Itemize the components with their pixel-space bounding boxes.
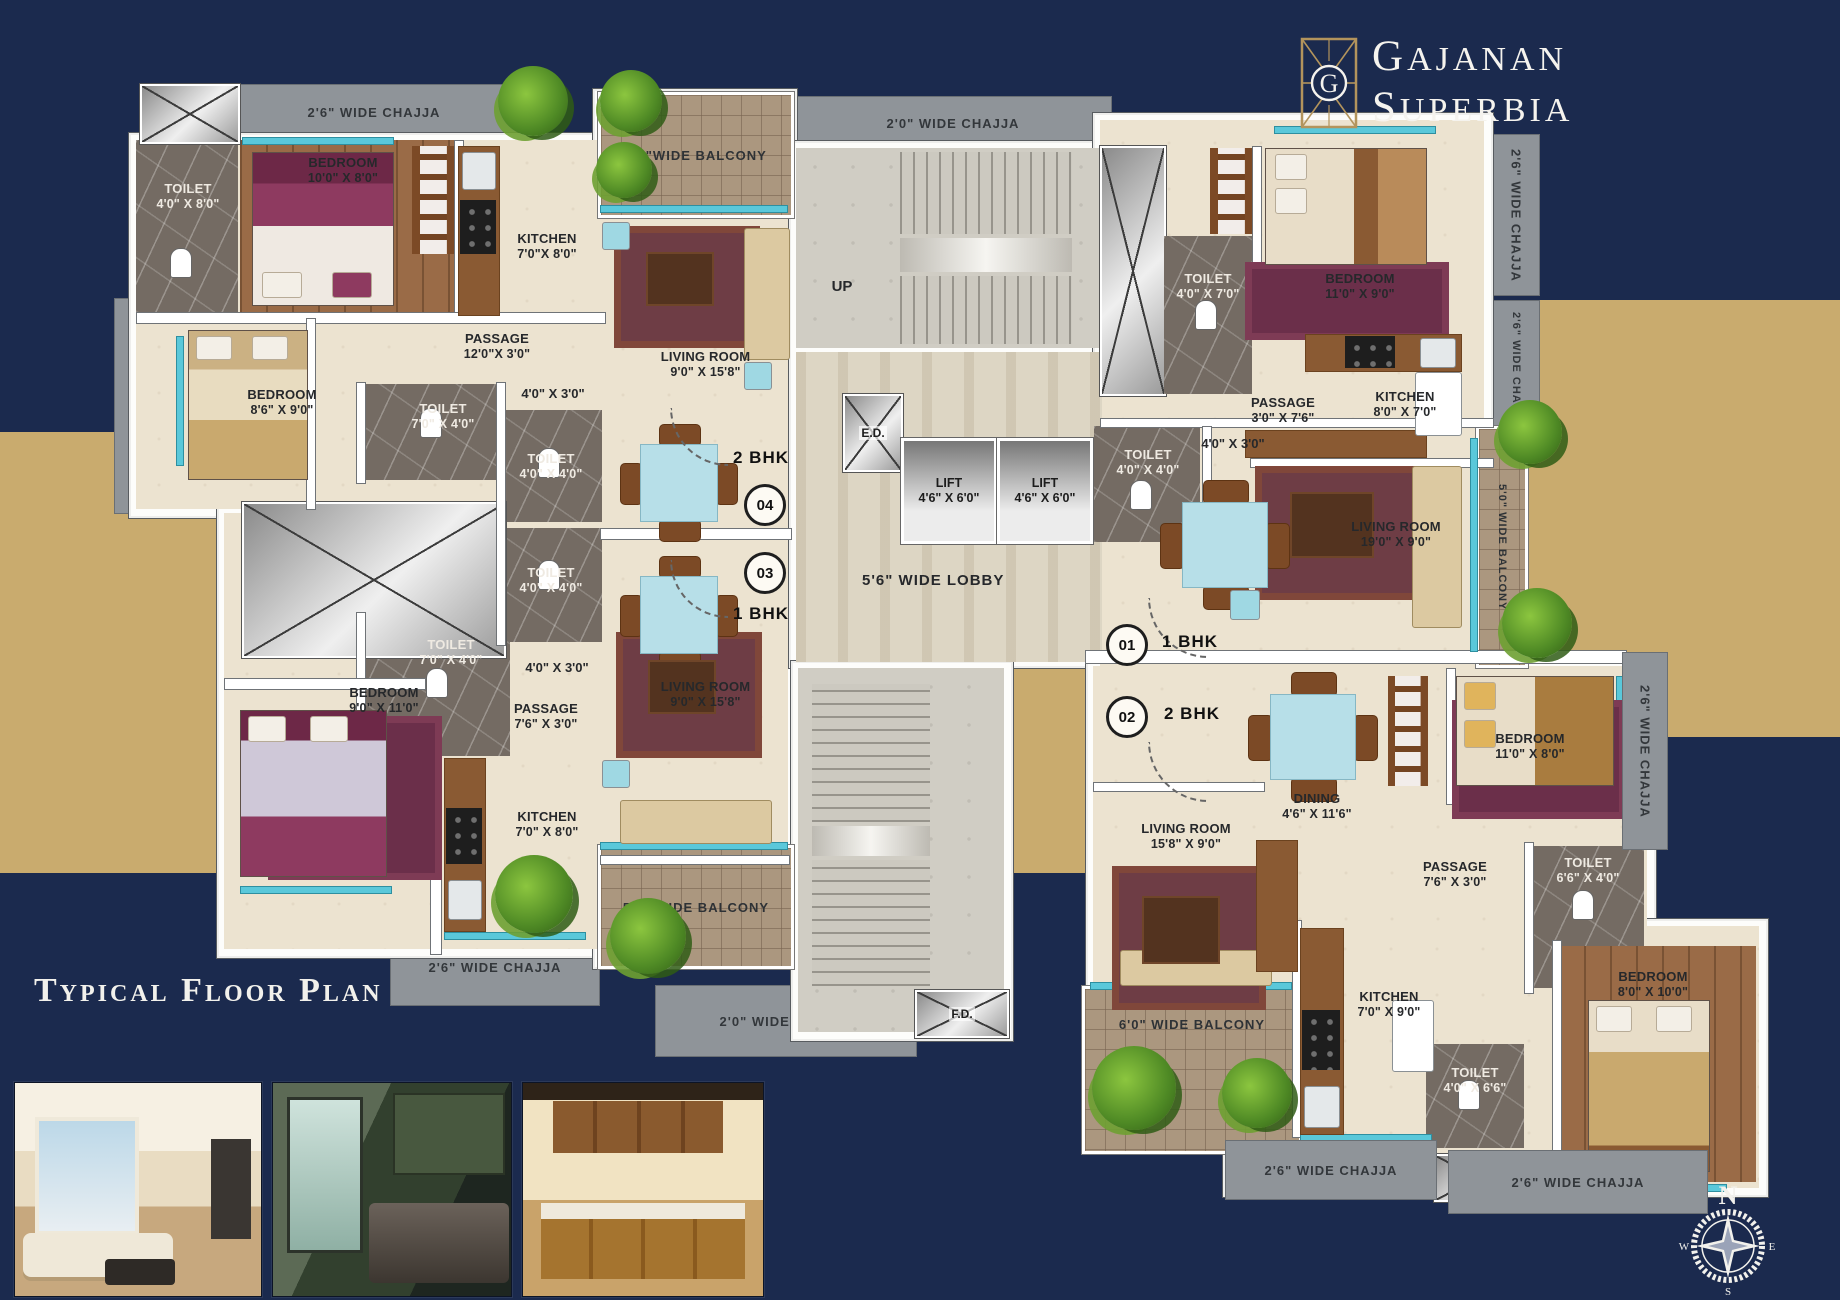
room-dims: 9'0" X 11'0" [322,701,446,715]
room-dims: 9'0" X 15'8" [648,695,763,709]
window [242,137,394,145]
room-label-toilet: TOILET7'0" X 4'0" [396,638,506,667]
stove [446,808,482,864]
stair-flight [812,860,930,986]
balcony-label: 6'0" WIDE BALCONY [1119,1017,1265,1032]
room-dims: 8'0" X 7'0" [1350,405,1460,419]
room-name: KITCHEN [1350,390,1460,405]
photo-wardrobe [393,1093,505,1175]
toilet-seat [1130,480,1152,510]
room-dims: 7'0"X 8'0" [492,247,602,261]
room-label-living: LIVING ROOM15'8" X 9'0" [1124,822,1248,851]
pillow [252,336,288,360]
room-label-toilet: TOILET7'0" X 4'0" [388,402,498,431]
room-label-kitchen: KITCHEN7'0" X 9'0" [1334,990,1444,1019]
room-label-bedroom: BEDROOM9'0" X 11'0" [322,686,446,715]
flat-01-type: 1 BHK [1162,632,1218,652]
room-dims: 4'0" X 8'0" [138,197,238,211]
room-dims: 3'0" X 7'6" [1238,411,1328,425]
room-name: BEDROOM [222,388,342,403]
wall [1524,842,1534,994]
brand-monogram: G [1320,69,1339,98]
room-label-bedroom: BEDROOM8'0" X 10'0" [1578,970,1728,999]
room-dims: 4'0" X 6'6" [1428,1081,1522,1095]
room-dims: 4'0" X 4'0" [1098,463,1198,477]
chajja-right-top: 2'6" WIDE CHAJJA [1492,134,1540,296]
room-dims: 4'0" X 4'0" [506,467,596,481]
room-dims: 8'6" X 9'0" [222,403,342,417]
side-table [602,760,630,788]
room-name: TOILET [506,452,596,467]
chajja-label: 2'6" WIDE CHAJJA [1638,685,1653,818]
wall [600,855,790,865]
photo-bed [369,1203,509,1283]
room-dims: 10'0" X 8'0" [278,171,408,185]
lift-dims: 4'6" X 6'0" [1015,491,1076,506]
stove [1345,336,1395,368]
room-name: LIVING ROOM [1334,520,1458,535]
interior-photo-bedroom [272,1082,512,1297]
photo-counter [541,1203,745,1219]
pillow [1275,154,1307,180]
room-dims: 6'6" X 4'0" [1534,871,1642,885]
fd-label: F.D. [949,1007,974,1021]
page-title: Typical Floor Plan [34,972,383,1010]
room-dims: 12'0"X 3'0" [438,347,556,361]
plant [596,142,652,198]
chair [1265,523,1290,569]
flat-03-number: 03 [744,552,786,594]
balcony-label: 5'0" WIDE BALCONY [1496,484,1508,610]
pillow [1275,188,1307,214]
pillow [332,272,372,298]
window [240,886,392,894]
brand-line-1: GAJANAN [1372,32,1573,83]
photo-window [35,1117,139,1235]
room-label-living: LIVING ROOM19'0" X 9'0" [1334,520,1458,549]
room-label-bedroom: BEDROOM10'0" X 8'0" [278,156,408,185]
flat-03-type: 1 BHK [716,604,806,624]
window [176,336,184,466]
brand-emblem-icon: G [1300,37,1358,129]
room-name: LIVING ROOM [648,350,763,365]
chajja-label: 2'6" WIDE CHAJJA [1509,149,1524,282]
flat-02-type: 2 BHK [1164,704,1220,724]
plant [495,855,573,933]
plant [1502,588,1572,658]
side-table [602,222,630,250]
stair-flight [900,276,1072,344]
pillow [1464,682,1496,710]
plant [610,898,686,974]
flat-04-type: 2 BHK [716,448,806,468]
compass-rose: N W E S [1660,1178,1796,1298]
room-dims: 7'0" X 4'0" [388,417,498,431]
room-label-passage: PASSAGE7'6" X 3'0" [494,702,598,731]
toilet-seat [1572,890,1594,920]
compass-west: W [1679,1241,1690,1253]
room-label-toilet: TOILET6'6" X 4'0" [1534,856,1642,885]
room-label-living: LIVING ROOM9'0" X 15'8" [648,680,763,709]
room-name: PASSAGE [494,702,598,717]
photo-cabinets-lower [541,1219,745,1279]
chajja-right-mid: 2'6" WIDE CHAJJA [1622,652,1668,850]
room-name: PASSAGE [1238,396,1328,411]
room-dims: 11'0" X 8'0" [1468,747,1592,761]
window [444,932,586,940]
room-dims: 11'0" X 9'0" [1298,287,1422,301]
dim-label: 4'0" X 3'0" [1188,436,1278,451]
room-dims: 8'0" X 10'0" [1578,985,1728,999]
room-name: BEDROOM [278,156,408,171]
room-name: KITCHEN [492,232,602,247]
room-name: PASSAGE [438,332,556,347]
chajja-bottom-right-1: 2'6" WIDE CHAJJA [1225,1140,1437,1200]
room-label-toilet: TOILET4'0" X 7'0" [1152,272,1264,301]
room-label-passage: PASSAGE3'0" X 7'6" [1238,396,1328,425]
room-name: LIVING ROOM [1124,822,1248,837]
room-name: PASSAGE [1400,860,1510,875]
room-name: DINING [1262,792,1372,807]
toilet-seat [1195,300,1217,330]
room-label-toilet: TOILET4'0" X 8'0" [138,182,238,211]
room-name: LIVING ROOM [648,680,763,695]
photo-window [287,1097,363,1253]
room-label-passage: PASSAGE7'6" X 3'0" [1400,860,1510,889]
room-label-bedroom: BEDROOM11'0" X 8'0" [1468,732,1592,761]
room-name: BEDROOM [1578,970,1728,985]
plant [1498,400,1562,464]
plant [498,66,568,136]
chajja-label: 2'0" WIDE CHAJJA [887,116,1020,131]
room-label-toilet: TOILET4'0" X 4'0" [506,452,596,481]
chajja-label: 2'6" WIDE CHAJJA [308,105,441,120]
pillow [1656,1006,1692,1032]
toilet-floor [136,140,238,312]
tv-unit [1256,840,1298,972]
compass-east: E [1769,1241,1776,1253]
room-label-dining: DINING4'6" X 11'6" [1262,792,1372,821]
room-name: BEDROOM [1468,732,1592,747]
dining-set [1248,672,1378,802]
room-dims: 7'6" X 3'0" [1400,875,1510,889]
wall [136,312,606,324]
brand-name: GAJANAN SUPERBIA [1372,32,1573,133]
dining-set [1160,480,1290,610]
toilet-seat [170,248,192,278]
plant [1092,1046,1176,1130]
pillow [196,336,232,360]
lift-name: LIFT [1032,476,1058,491]
room-label-bedroom: BEDROOM11'0" X 9'0" [1298,272,1422,301]
kitchen-sink [1420,338,1456,368]
room-dims: 7'6" X 3'0" [494,717,598,731]
pillow [262,272,302,298]
room-label-bedroom: BEDROOM8'6" X 9'0" [222,388,342,417]
room-label-toilet: TOILET4'0" X 4'0" [1098,448,1198,477]
stove [460,200,496,254]
room-dims: 4'6" X 11'6" [1262,807,1372,821]
ed-label: E.D. [859,426,886,440]
flat-04-number: 04 [744,484,786,526]
room-label-living: LIVING ROOM9'0" X 15'8" [648,350,763,379]
stair-flight [900,152,1072,234]
chajja-label: 2'6" WIDE CHAJJA [1512,1175,1645,1190]
room-dims: 9'0" X 15'8" [648,365,763,379]
room-name: KITCHEN [1334,990,1444,1005]
room-name: BEDROOM [322,686,446,701]
sofa [744,228,790,360]
room-name: TOILET [388,402,498,417]
duct-shaft [1100,146,1166,396]
room-name: BEDROOM [1298,272,1422,287]
coffee-table [646,252,714,306]
compass-south: S [1725,1286,1731,1298]
side-table [1230,590,1260,620]
room-dims: 19'0" X 9'0" [1334,535,1458,549]
floor-plan-brochure: G GAJANAN SUPERBIA Typical Floor Plan 2'… [0,0,1840,1300]
room-dims: 7'0" X 8'0" [492,825,602,839]
kitchen-sink [1304,1086,1340,1128]
dim-label: 4'0" X 3'0" [512,660,602,675]
room-name: TOILET [138,182,238,197]
lift-dims: 4'6" X 6'0" [919,491,980,506]
plant [1222,1058,1292,1128]
window [1470,438,1478,652]
room-name: TOILET [1534,856,1642,871]
photo-coffee-table [105,1259,175,1285]
room-dims: 4'0" X 7'0" [1152,287,1264,301]
lift-2: LIFT4'6" X 6'0" [997,438,1093,544]
flat-02-number: 02 [1106,696,1148,738]
room-label-kitchen: KITCHEN7'0"X 8'0" [492,232,602,261]
plant [600,70,662,132]
photo-cabinets-upper [553,1101,723,1153]
room-name: TOILET [1428,1066,1522,1081]
dining-table [1270,694,1356,780]
fire-duct: F.D. [915,990,1009,1038]
interior-photo-living-room [14,1082,262,1297]
wall [356,382,366,484]
electrical-duct: E.D. [843,394,903,472]
wardrobe [412,146,454,254]
photo-tv-unit [211,1139,251,1239]
stair-landing [900,238,1072,272]
room-label-kitchen: KITCHEN7'0" X 8'0" [492,810,602,839]
dining-table [1182,502,1268,588]
room-label-toilet: TOILET4'0" X 4'0" [506,566,596,595]
duct-shaft [140,84,240,144]
room-label-toilet: TOILET4'0" X 6'6" [1428,1066,1522,1095]
brand-logo: G GAJANAN SUPERBIA [1300,32,1573,133]
sofa [620,800,772,844]
wardrobe [1210,148,1252,234]
room-dims: 7'0" X 9'0" [1334,1005,1444,1019]
room-dims: 7'0" X 4'0" [396,653,506,667]
chair [1353,715,1378,761]
lift-name: LIFT [936,476,962,491]
wardrobe [1388,676,1428,786]
lobby-label: 5'6" WIDE LOBBY [862,572,1004,589]
pillow [1596,1006,1632,1032]
window [600,205,788,213]
compass-north: N [1719,1181,1738,1210]
coffee-table [1142,896,1220,964]
room-name: TOILET [1152,272,1264,287]
flat-01-number: 01 [1106,624,1148,666]
room-name: KITCHEN [492,810,602,825]
room-dims: 15'8" X 9'0" [1124,837,1248,851]
kitchen-sink [462,152,496,190]
chajja-label: 2'6" WIDE CHAJJA [429,960,562,975]
room-dims: 4'0" X 4'0" [506,581,596,595]
stair-flight [812,684,930,822]
interior-photo-kitchen [522,1082,764,1297]
dim-label: 4'0" X 3'0" [508,386,598,401]
room-name: TOILET [396,638,506,653]
room-label-passage: PASSAGE12'0"X 3'0" [438,332,556,361]
stair-landing [812,826,930,856]
chair [659,519,701,542]
up-label: UP [812,278,872,295]
room-name: TOILET [506,566,596,581]
pillow [248,716,286,742]
brand-line-2: SUPERBIA [1372,83,1573,134]
kitchen-sink [448,880,482,920]
room-label-kitchen: KITCHEN8'0" X 7'0" [1350,390,1460,419]
chajja-label: 2'6" WIDE CHAJJA [1265,1163,1398,1178]
lift-1: LIFT4'6" X 6'0" [901,438,997,544]
chair [715,463,738,505]
room-name: TOILET [1098,448,1198,463]
pillow [310,716,348,742]
duct-shaft [242,502,506,658]
